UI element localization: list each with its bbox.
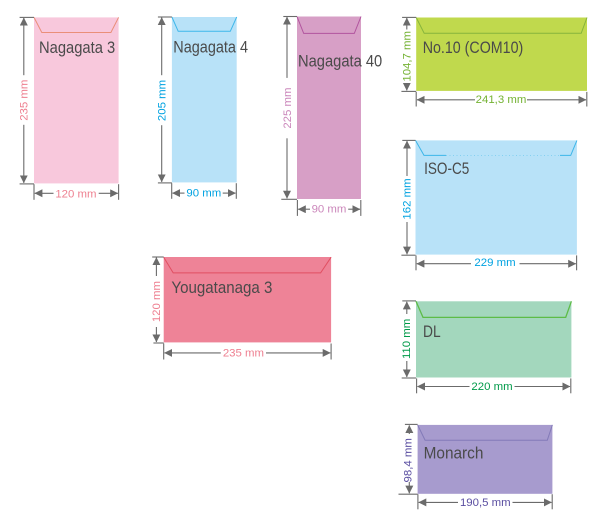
svg-text:Nagagata 40: Nagagata 40 [298, 52, 382, 71]
svg-text:No.10 (COM10): No.10 (COM10) [423, 38, 524, 57]
svg-text:90 mm: 90 mm [312, 204, 347, 216]
svg-text:220 mm: 220 mm [471, 381, 512, 393]
svg-text:241,3 mm: 241,3 mm [476, 94, 527, 106]
svg-text:190,5 mm: 190,5 mm [460, 497, 511, 509]
svg-text:235 mm: 235 mm [19, 80, 31, 121]
svg-text:235 mm: 235 mm [223, 347, 264, 359]
svg-text:ISO-C5: ISO-C5 [424, 159, 469, 178]
svg-text:229 mm: 229 mm [474, 257, 515, 269]
svg-text:DL: DL [423, 322, 441, 341]
svg-text:120 mm: 120 mm [55, 188, 96, 200]
svg-text:110 mm: 110 mm [401, 319, 413, 359]
svg-text:120 mm: 120 mm [151, 281, 163, 322]
svg-text:Monarch: Monarch [424, 444, 484, 463]
svg-text:205 mm: 205 mm [156, 80, 168, 121]
svg-text:98,4 mm: 98,4 mm [403, 438, 415, 482]
svg-text:Nagagata 3: Nagagata 3 [39, 38, 115, 57]
svg-text:162 mm: 162 mm [402, 178, 414, 219]
svg-text:Yougatanaga 3: Yougatanaga 3 [171, 278, 272, 297]
svg-text:Nagagata 4: Nagagata 4 [173, 37, 248, 56]
svg-text:104,7 mm: 104,7 mm [402, 31, 414, 82]
svg-text:90 mm: 90 mm [186, 188, 221, 200]
svg-text:225 mm: 225 mm [282, 88, 294, 129]
